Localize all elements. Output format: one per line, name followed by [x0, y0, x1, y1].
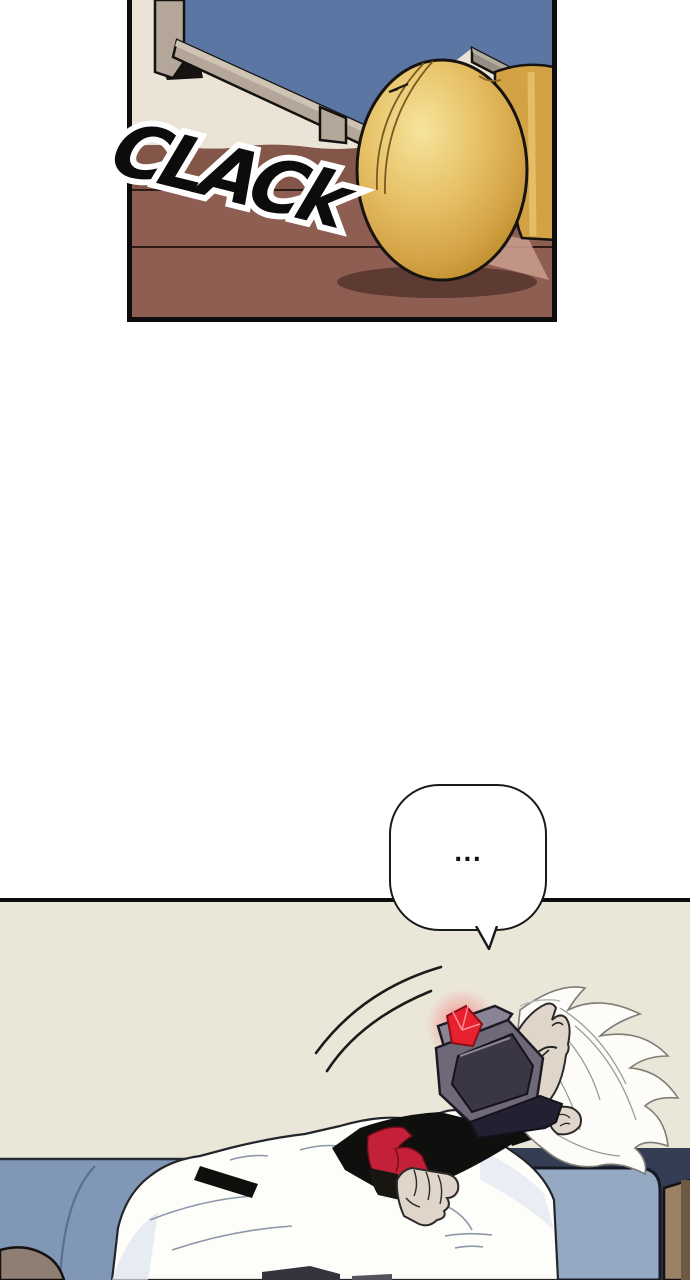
ellipsis-text: ... [391, 844, 545, 866]
wood-door-edge-shade [681, 1180, 690, 1280]
comic-page: CLACk CLACk [0, 0, 690, 1280]
door-knob-scene [127, 0, 557, 322]
door-knob [357, 60, 527, 280]
bubble-tail [466, 926, 506, 954]
panel-border-top [0, 898, 690, 902]
frame-left-post [155, 0, 184, 78]
speech-bubble: ... [389, 784, 547, 931]
panel-sleeping-character [0, 898, 690, 1280]
panel-door-knob [127, 0, 557, 322]
couch-scene [0, 898, 690, 1280]
shaft-highlight [531, 72, 533, 236]
